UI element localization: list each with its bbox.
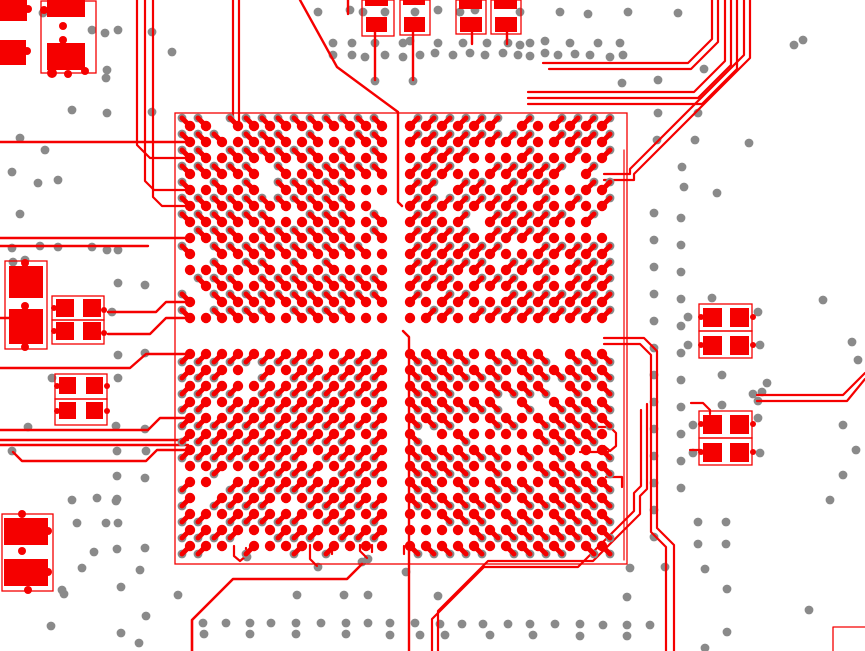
smd-pad[interactable]	[404, 17, 425, 32]
via[interactable]	[526, 52, 535, 61]
bga-ball-pad[interactable]	[201, 313, 211, 323]
bga-ball-pad[interactable]	[421, 313, 431, 323]
via[interactable]	[852, 446, 861, 455]
via[interactable]	[411, 619, 420, 628]
smd-pad[interactable]	[47, 0, 85, 17]
bga-ball-pad[interactable]	[533, 233, 543, 243]
bga-ball-pad[interactable]	[501, 445, 511, 455]
bga-ball-pad[interactable]	[437, 461, 447, 471]
bga-ball-pad[interactable]	[453, 349, 463, 359]
bga-ball-pad[interactable]	[185, 185, 195, 195]
smd-pad[interactable]	[59, 377, 76, 394]
bga-ball-pad[interactable]	[485, 509, 495, 519]
bga-ball-pad[interactable]	[361, 121, 371, 131]
bga-ball-pad[interactable]	[549, 281, 559, 291]
bga-ball-pad[interactable]	[377, 281, 387, 291]
via[interactable]	[141, 281, 150, 290]
via[interactable]	[342, 630, 351, 639]
bga-ball-pad[interactable]	[469, 349, 479, 359]
bga-ball-pad[interactable]	[281, 137, 291, 147]
bga-ball-pad[interactable]	[281, 445, 291, 455]
bga-ball-pad[interactable]	[249, 233, 259, 243]
bga-ball-pad[interactable]	[185, 541, 195, 551]
bga-ball-pad[interactable]	[485, 397, 495, 407]
bga-ball-pad[interactable]	[297, 509, 307, 519]
bga-ball-pad[interactable]	[185, 217, 195, 227]
bga-ball-pad[interactable]	[549, 477, 559, 487]
bga-ball-pad[interactable]	[549, 265, 559, 275]
bga-ball-pad[interactable]	[597, 121, 607, 131]
bga-ball-pad[interactable]	[517, 445, 527, 455]
bga-ball-pad[interactable]	[249, 265, 259, 275]
bga-ball-pad[interactable]	[597, 381, 607, 391]
bga-ball-pad[interactable]	[313, 477, 323, 487]
via[interactable]	[571, 50, 580, 59]
bga-ball-pad[interactable]	[217, 137, 227, 147]
bga-ball-pad[interactable]	[405, 381, 415, 391]
bga-ball-pad[interactable]	[533, 365, 543, 375]
bga-ball-pad[interactable]	[313, 169, 323, 179]
bga-ball-pad[interactable]	[469, 137, 479, 147]
bga-ball-pad[interactable]	[217, 297, 227, 307]
bga-ball-pad[interactable]	[377, 413, 387, 423]
bga-ball-pad[interactable]	[249, 477, 259, 487]
bga-ball-pad[interactable]	[249, 153, 259, 163]
bga-ball-pad[interactable]	[549, 201, 559, 211]
bga-ball-pad[interactable]	[517, 137, 527, 147]
bga-ball-pad[interactable]	[469, 233, 479, 243]
bga-ball-pad[interactable]	[549, 217, 559, 227]
bga-ball-pad[interactable]	[297, 185, 307, 195]
bga-ball-pad[interactable]	[265, 297, 275, 307]
bga-ball-pad[interactable]	[501, 365, 511, 375]
smd-pad[interactable]	[9, 309, 43, 344]
bga-ball-pad[interactable]	[421, 265, 431, 275]
bga-ball-pad[interactable]	[453, 265, 463, 275]
bga-ball-pad[interactable]	[249, 169, 259, 179]
bga-ball-pad[interactable]	[581, 365, 591, 375]
bga-ball-pad[interactable]	[485, 185, 495, 195]
bga-ball-pad[interactable]	[501, 413, 511, 423]
bga-ball-pad[interactable]	[201, 381, 211, 391]
bga-ball-pad[interactable]	[297, 493, 307, 503]
bga-ball-pad[interactable]	[549, 541, 559, 551]
bga-ball-pad[interactable]	[405, 477, 415, 487]
via[interactable]	[434, 592, 443, 601]
bga-ball-pad[interactable]	[201, 137, 211, 147]
via[interactable]	[584, 10, 593, 19]
via[interactable]	[9, 258, 18, 267]
bga-ball-pad[interactable]	[185, 365, 195, 375]
bga-ball-pad[interactable]	[377, 313, 387, 323]
via[interactable]	[102, 519, 111, 528]
bga-ball-pad[interactable]	[329, 233, 339, 243]
via[interactable]	[199, 619, 208, 628]
bga-ball-pad[interactable]	[501, 541, 511, 551]
bga-ball-pad[interactable]	[405, 169, 415, 179]
bga-ball-pad[interactable]	[453, 477, 463, 487]
bga-ball-pad[interactable]	[361, 233, 371, 243]
via[interactable]	[576, 620, 585, 629]
bga-ball-pad[interactable]	[469, 381, 479, 391]
bga-ball-pad[interactable]	[281, 525, 291, 535]
bga-ball-pad[interactable]	[217, 509, 227, 519]
bga-ball-pad[interactable]	[565, 297, 575, 307]
bga-ball-pad[interactable]	[485, 201, 495, 211]
bga-ball-pad[interactable]	[281, 249, 291, 259]
bga-ball-pad[interactable]	[485, 413, 495, 423]
bga-ball-pad[interactable]	[565, 201, 575, 211]
bga-ball-pad[interactable]	[233, 349, 243, 359]
via[interactable]	[684, 341, 693, 350]
bga-ball-pad[interactable]	[501, 381, 511, 391]
bga-ball-pad[interactable]	[517, 477, 527, 487]
via[interactable]	[689, 421, 698, 430]
bga-ball-pad[interactable]	[297, 525, 307, 535]
bga-ball-pad[interactable]	[329, 493, 339, 503]
bga-ball-pad[interactable]	[597, 249, 607, 259]
bga-ball-pad[interactable]	[377, 153, 387, 163]
bga-ball-pad[interactable]	[281, 429, 291, 439]
bga-ball-pad[interactable]	[345, 233, 355, 243]
bga-ball-pad[interactable]	[581, 349, 591, 359]
via[interactable]	[434, 6, 443, 15]
via[interactable]	[677, 322, 686, 331]
bga-ball-pad[interactable]	[597, 297, 607, 307]
via[interactable]	[504, 620, 513, 629]
via[interactable]	[708, 294, 717, 303]
bga-ball-pad[interactable]	[437, 349, 447, 359]
bga-ball-pad[interactable]	[329, 413, 339, 423]
bga-ball-pad[interactable]	[313, 297, 323, 307]
bga-ball-pad[interactable]	[421, 397, 431, 407]
bga-ball-pad[interactable]	[265, 509, 275, 519]
bga-ball-pad[interactable]	[517, 365, 527, 375]
bga-ball-pad[interactable]	[405, 461, 415, 471]
bga-ball-pad[interactable]	[329, 381, 339, 391]
bga-ball-pad[interactable]	[201, 233, 211, 243]
bga-ball-pad[interactable]	[437, 313, 447, 323]
bga-ball-pad[interactable]	[453, 313, 463, 323]
bga-ball-pad[interactable]	[405, 265, 415, 275]
via[interactable]	[623, 593, 632, 602]
bga-ball-pad[interactable]	[437, 509, 447, 519]
via[interactable]	[854, 356, 863, 365]
bga-ball-pad[interactable]	[361, 541, 371, 551]
smd-pad[interactable]	[0, 40, 26, 65]
bga-ball-pad[interactable]	[185, 493, 195, 503]
bga-ball-pad[interactable]	[421, 233, 431, 243]
bga-ball-pad[interactable]	[249, 381, 259, 391]
bga-ball-pad[interactable]	[185, 265, 195, 275]
bga-ball-pad[interactable]	[485, 525, 495, 535]
bga-ball-pad[interactable]	[297, 153, 307, 163]
bga-ball-pad[interactable]	[201, 525, 211, 535]
via[interactable]	[434, 39, 443, 48]
bga-ball-pad[interactable]	[405, 445, 415, 455]
bga-ball-pad[interactable]	[201, 445, 211, 455]
bga-ball-pad[interactable]	[265, 413, 275, 423]
bga-ball-pad[interactable]	[233, 493, 243, 503]
via[interactable]	[499, 49, 508, 58]
via[interactable]	[526, 39, 535, 48]
bga-ball-pad[interactable]	[533, 217, 543, 227]
smd-pad[interactable]	[4, 559, 48, 586]
bga-ball-pad[interactable]	[297, 477, 307, 487]
bga-ball-pad[interactable]	[265, 349, 275, 359]
bga-ball-pad[interactable]	[329, 201, 339, 211]
via[interactable]	[60, 590, 69, 599]
bga-ball-pad[interactable]	[361, 365, 371, 375]
bga-ball-pad[interactable]	[453, 365, 463, 375]
bga-ball-pad[interactable]	[485, 313, 495, 323]
bga-ball-pad[interactable]	[329, 397, 339, 407]
bga-ball-pad[interactable]	[249, 185, 259, 195]
bga-ball-pad[interactable]	[233, 121, 243, 131]
via[interactable]	[113, 472, 122, 481]
bga-ball-pad[interactable]	[469, 201, 479, 211]
bga-ball-pad[interactable]	[533, 249, 543, 259]
bga-ball-pad[interactable]	[185, 201, 195, 211]
bga-ball-pad[interactable]	[185, 249, 195, 259]
via[interactable]	[136, 566, 145, 575]
bga-ball-pad[interactable]	[233, 509, 243, 519]
bga-ball-pad[interactable]	[581, 541, 591, 551]
bga-ball-pad[interactable]	[565, 461, 575, 471]
bga-ball-pad[interactable]	[297, 461, 307, 471]
bga-ball-pad[interactable]	[453, 233, 463, 243]
bga-ball-pad[interactable]	[329, 281, 339, 291]
bga-ball-pad[interactable]	[565, 509, 575, 519]
bga-ball-pad[interactable]	[233, 265, 243, 275]
bga-ball-pad[interactable]	[469, 429, 479, 439]
bga-ball-pad[interactable]	[453, 397, 463, 407]
via[interactable]	[381, 51, 390, 60]
via[interactable]	[114, 26, 123, 35]
bga-ball-pad[interactable]	[597, 397, 607, 407]
bga-ball-pad[interactable]	[533, 121, 543, 131]
via[interactable]	[441, 631, 450, 640]
via[interactable]	[411, 8, 420, 17]
bga-ball-pad[interactable]	[501, 185, 511, 195]
bga-ball-pad[interactable]	[581, 281, 591, 291]
bga-ball-pad[interactable]	[469, 509, 479, 519]
bga-ball-pad[interactable]	[329, 541, 339, 551]
via[interactable]	[246, 619, 255, 628]
via[interactable]	[78, 564, 87, 573]
bga-ball-pad[interactable]	[565, 185, 575, 195]
via[interactable]	[691, 136, 700, 145]
bga-ball-pad[interactable]	[565, 541, 575, 551]
bga-ball-pad[interactable]	[361, 169, 371, 179]
via[interactable]	[701, 565, 710, 574]
bga-ball-pad[interactable]	[281, 413, 291, 423]
smd-pad[interactable]	[730, 415, 749, 434]
via[interactable]	[68, 106, 77, 115]
bga-ball-pad[interactable]	[281, 381, 291, 391]
bga-ball-pad[interactable]	[185, 169, 195, 179]
via[interactable]	[340, 591, 349, 600]
bga-ball-pad[interactable]	[345, 153, 355, 163]
via[interactable]	[54, 176, 63, 185]
bga-ball-pad[interactable]	[377, 349, 387, 359]
bga-ball-pad[interactable]	[297, 541, 307, 551]
bga-ball-pad[interactable]	[345, 365, 355, 375]
bga-ball-pad[interactable]	[453, 281, 463, 291]
bga-ball-pad[interactable]	[345, 217, 355, 227]
via[interactable]	[650, 317, 659, 326]
bga-ball-pad[interactable]	[421, 349, 431, 359]
bga-ball-pad[interactable]	[377, 297, 387, 307]
via[interactable]	[102, 74, 111, 83]
via[interactable]	[222, 619, 231, 628]
bga-ball-pad[interactable]	[533, 169, 543, 179]
bga-ball-pad[interactable]	[581, 153, 591, 163]
bga-ball-pad[interactable]	[281, 313, 291, 323]
bga-ball-pad[interactable]	[329, 461, 339, 471]
bga-ball-pad[interactable]	[345, 137, 355, 147]
bga-ball-pad[interactable]	[485, 137, 495, 147]
bga-ball-pad[interactable]	[485, 429, 495, 439]
bga-ball-pad[interactable]	[313, 397, 323, 407]
bga-ball-pad[interactable]	[345, 121, 355, 131]
bga-ball-pad[interactable]	[581, 185, 591, 195]
bga-ball-pad[interactable]	[485, 541, 495, 551]
bga-ball-pad[interactable]	[217, 365, 227, 375]
bga-ball-pad[interactable]	[405, 429, 415, 439]
bga-ball-pad[interactable]	[377, 477, 387, 487]
bga-ball-pad[interactable]	[249, 493, 259, 503]
bga-ball-pad[interactable]	[329, 445, 339, 455]
bga-ball-pad[interactable]	[565, 381, 575, 391]
bga-ball-pad[interactable]	[453, 249, 463, 259]
bga-ball-pad[interactable]	[265, 265, 275, 275]
bga-ball-pad[interactable]	[329, 185, 339, 195]
bga-ball-pad[interactable]	[297, 313, 307, 323]
bga-ball-pad[interactable]	[581, 509, 591, 519]
bga-ball-pad[interactable]	[565, 493, 575, 503]
bga-ball-pad[interactable]	[361, 349, 371, 359]
bga-ball-pad[interactable]	[485, 445, 495, 455]
via[interactable]	[317, 619, 326, 628]
bga-ball-pad[interactable]	[533, 137, 543, 147]
bga-ball-pad[interactable]	[453, 429, 463, 439]
smd-pad[interactable]	[460, 17, 482, 32]
bga-ball-pad[interactable]	[217, 541, 227, 551]
bga-ball-pad[interactable]	[185, 297, 195, 307]
bga-ball-pad[interactable]	[549, 137, 559, 147]
bga-ball-pad[interactable]	[345, 429, 355, 439]
bga-ball-pad[interactable]	[517, 461, 527, 471]
bga-ball-pad[interactable]	[297, 413, 307, 423]
bga-ball-pad[interactable]	[549, 525, 559, 535]
bga-ball-pad[interactable]	[233, 525, 243, 535]
bga-ball-pad[interactable]	[421, 281, 431, 291]
bga-ball-pad[interactable]	[313, 429, 323, 439]
smd-pad[interactable]	[459, 0, 482, 9]
bga-ball-pad[interactable]	[345, 201, 355, 211]
bga-ball-pad[interactable]	[233, 445, 243, 455]
smd-pad[interactable]	[730, 336, 749, 355]
bga-ball-pad[interactable]	[597, 365, 607, 375]
bga-ball-pad[interactable]	[377, 381, 387, 391]
bga-ball-pad[interactable]	[313, 445, 323, 455]
via[interactable]	[754, 414, 763, 423]
bga-ball-pad[interactable]	[361, 201, 371, 211]
bga-ball-pad[interactable]	[329, 297, 339, 307]
bga-ball-pad[interactable]	[233, 365, 243, 375]
bga-ball-pad[interactable]	[581, 493, 591, 503]
bga-ball-pad[interactable]	[469, 477, 479, 487]
bga-ball-pad[interactable]	[313, 493, 323, 503]
bga-ball-pad[interactable]	[421, 477, 431, 487]
smd-pad[interactable]	[86, 377, 103, 394]
smd-pad[interactable]	[703, 308, 722, 327]
via[interactable]	[722, 518, 731, 527]
via[interactable]	[73, 519, 82, 528]
bga-ball-pad[interactable]	[501, 153, 511, 163]
bga-ball-pad[interactable]	[233, 477, 243, 487]
bga-ball-pad[interactable]	[361, 249, 371, 259]
bga-ball-pad[interactable]	[485, 477, 495, 487]
bga-ball-pad[interactable]	[469, 153, 479, 163]
bga-ball-pad[interactable]	[297, 297, 307, 307]
bga-ball-pad[interactable]	[313, 233, 323, 243]
bga-ball-pad[interactable]	[217, 413, 227, 423]
bga-ball-pad[interactable]	[453, 185, 463, 195]
via[interactable]	[624, 8, 633, 17]
bga-ball-pad[interactable]	[281, 461, 291, 471]
bga-ball-pad[interactable]	[453, 493, 463, 503]
via[interactable]	[114, 519, 123, 528]
bga-ball-pad[interactable]	[329, 137, 339, 147]
bga-ball-pad[interactable]	[345, 477, 355, 487]
bga-ball-pad[interactable]	[233, 281, 243, 291]
bga-ball-pad[interactable]	[345, 185, 355, 195]
bga-ball-pad[interactable]	[437, 429, 447, 439]
smd-pad[interactable]	[494, 0, 517, 9]
via[interactable]	[101, 29, 110, 38]
smd-pad[interactable]	[703, 443, 722, 462]
via[interactable]	[756, 341, 765, 350]
bga-ball-pad[interactable]	[201, 265, 211, 275]
bga-ball-pad[interactable]	[485, 233, 495, 243]
bga-ball-pad[interactable]	[405, 349, 415, 359]
bga-ball-pad[interactable]	[377, 137, 387, 147]
bga-ball-pad[interactable]	[469, 493, 479, 503]
bga-ball-pad[interactable]	[265, 493, 275, 503]
bga-ball-pad[interactable]	[533, 313, 543, 323]
via[interactable]	[677, 376, 686, 385]
bga-ball-pad[interactable]	[345, 349, 355, 359]
bga-ball-pad[interactable]	[501, 525, 511, 535]
bga-ball-pad[interactable]	[533, 413, 543, 423]
bga-ball-pad[interactable]	[405, 509, 415, 519]
bga-ball-pad[interactable]	[437, 525, 447, 535]
bga-ball-pad[interactable]	[549, 461, 559, 471]
bga-ball-pad[interactable]	[437, 249, 447, 259]
bga-ball-pad[interactable]	[217, 281, 227, 291]
bga-ball-pad[interactable]	[185, 477, 195, 487]
bga-ball-pad[interactable]	[421, 525, 431, 535]
bga-ball-pad[interactable]	[313, 381, 323, 391]
via[interactable]	[479, 620, 488, 629]
via[interactable]	[88, 26, 97, 35]
bga-ball-pad[interactable]	[581, 461, 591, 471]
bga-ball-pad[interactable]	[565, 217, 575, 227]
bga-ball-pad[interactable]	[313, 249, 323, 259]
bga-ball-pad[interactable]	[377, 493, 387, 503]
